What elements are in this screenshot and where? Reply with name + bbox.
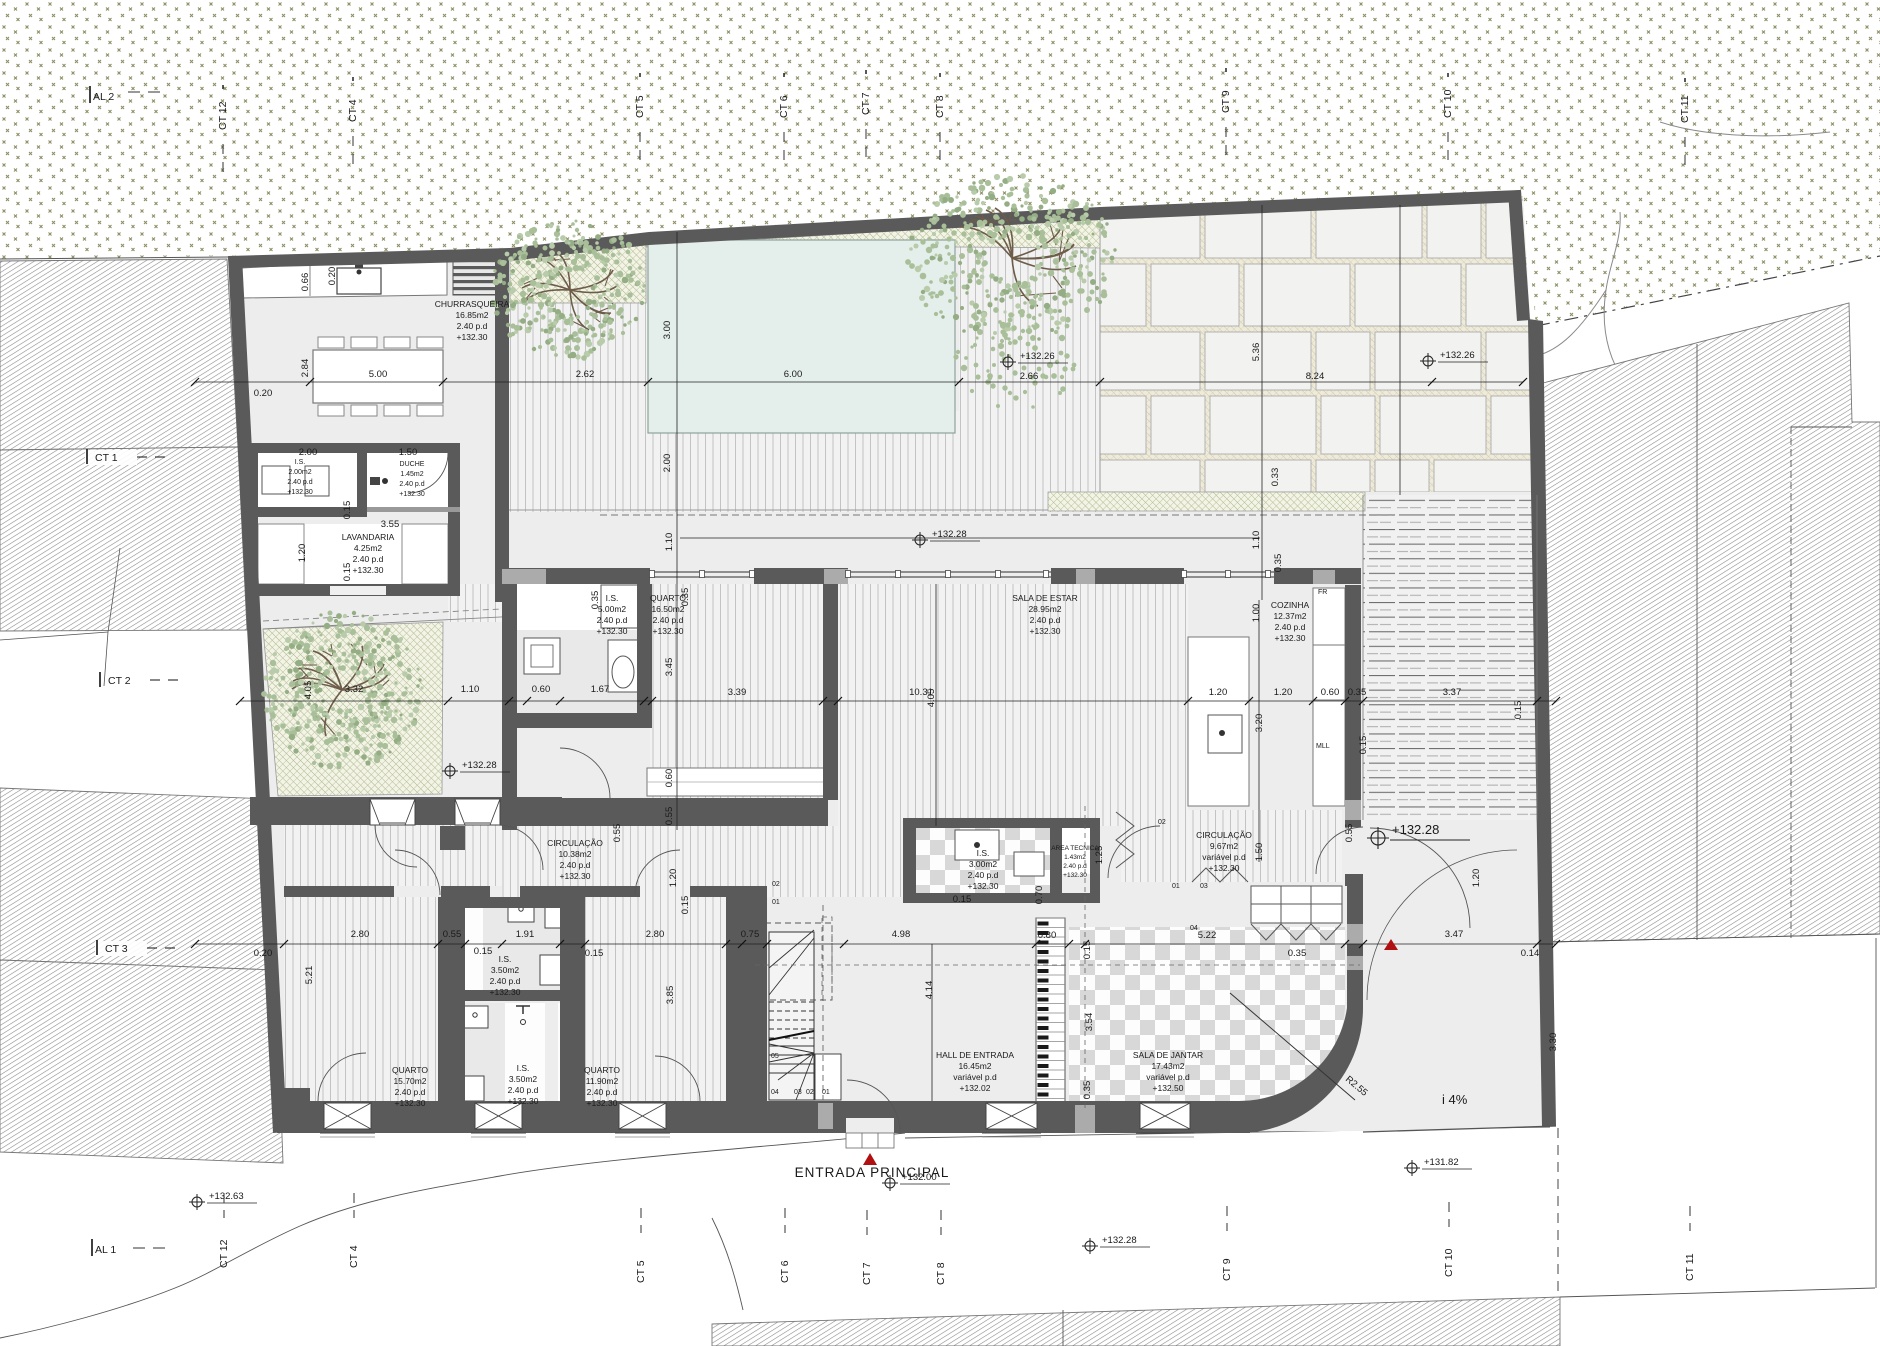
svg-text:0.60: 0.60 [1321,687,1340,698]
svg-text:0.20: 0.20 [327,267,338,286]
svg-text:1.67: 1.67 [591,684,610,695]
svg-text:2.40 p.d: 2.40 p.d [490,976,521,986]
svg-text:+132.26: +132.26 [1440,350,1475,361]
svg-text:4.05: 4.05 [926,689,937,708]
svg-text:3.39: 3.39 [728,687,747,698]
svg-text:0.75: 0.75 [741,929,760,940]
svg-text:CIRCULAÇÃO: CIRCULAÇÃO [1196,830,1252,840]
svg-text:2.00m2: 2.00m2 [288,469,311,476]
svg-text:0.35: 0.35 [1288,948,1307,959]
svg-text:0.20: 0.20 [254,388,273,399]
svg-text:0.15: 0.15 [1082,941,1093,960]
svg-text:01: 01 [1172,883,1180,890]
svg-text:02: 02 [806,1089,814,1096]
svg-text:2.40 p.d: 2.40 p.d [287,479,312,486]
svg-text:0.80: 0.80 [1038,930,1057,941]
svg-text:1.20: 1.20 [668,869,679,888]
svg-text:0.15: 0.15 [474,946,493,957]
svg-text:+132.30: +132.30 [353,565,384,575]
svg-text:CT 12: CT 12 [218,1239,230,1268]
svg-text:variável p.d: variável p.d [953,1072,997,1082]
svg-text:1.50: 1.50 [399,447,418,458]
svg-text:1.20: 1.20 [1471,869,1482,888]
svg-text:SALA DE ESTAR: SALA DE ESTAR [1012,593,1078,603]
svg-text:1.20: 1.20 [1274,687,1293,698]
svg-text:3.54: 3.54 [1084,1013,1095,1032]
svg-text:01: 01 [822,1089,830,1096]
svg-text:5.00m2: 5.00m2 [598,604,627,614]
svg-text:04: 04 [771,1089,779,1096]
svg-text:CT 5: CT 5 [635,1260,647,1283]
svg-text:0.15: 0.15 [342,501,353,520]
svg-text:4.05: 4.05 [303,681,314,700]
svg-text:3.85: 3.85 [665,986,676,1005]
svg-text:3.20: 3.20 [1254,714,1265,733]
svg-text:SALA DE JANTAR: SALA DE JANTAR [1133,1050,1203,1060]
svg-text:QUARTO: QUARTO [584,1065,620,1075]
svg-text:CT 5: CT 5 [634,95,646,118]
svg-text:CIRCULAÇÃO: CIRCULAÇÃO [547,838,603,848]
svg-text:CT 1: CT 1 [95,452,118,464]
svg-text:AL 1: AL 1 [95,1244,116,1256]
svg-text:QUARTO: QUARTO [392,1065,428,1075]
svg-text:+131.82: +131.82 [1424,1157,1459,1168]
svg-text:CT 7: CT 7 [861,1262,873,1285]
svg-text:0.15: 0.15 [680,896,691,915]
svg-text:+132.28: +132.28 [462,760,497,771]
svg-text:I.S.: I.S. [499,954,512,964]
svg-text:1.10: 1.10 [1251,531,1262,550]
svg-text:1.20: 1.20 [297,544,308,563]
svg-text:AREA TECNICA: AREA TECNICA [1051,845,1099,852]
svg-text:CHURRASQUEIRA: CHURRASQUEIRA [435,299,510,309]
svg-text:+132.30: +132.30 [1209,863,1240,873]
svg-text:1.43m2: 1.43m2 [1064,854,1086,861]
svg-text:0.15: 0.15 [953,894,972,905]
svg-text:0.33: 0.33 [1270,468,1281,487]
svg-text:3.45: 3.45 [664,658,675,677]
svg-text:2.40 p.d: 2.40 p.d [587,1087,618,1097]
svg-text:3.00: 3.00 [662,321,673,340]
svg-text:1.20: 1.20 [1209,687,1228,698]
svg-text:2.40 p.d: 2.40 p.d [457,321,488,331]
svg-text:+132.02: +132.02 [960,1083,991,1093]
svg-text:2.40 p.d: 2.40 p.d [653,615,684,625]
svg-text:+132.30: +132.30 [1030,626,1061,636]
svg-text:+132.30: +132.30 [597,626,628,636]
svg-text:COZINHA: COZINHA [1271,600,1310,610]
svg-text:5.21: 5.21 [304,966,315,985]
svg-text:28.95m2: 28.95m2 [1028,604,1061,614]
svg-text:I.S.: I.S. [977,848,990,858]
svg-text:2.40 p.d: 2.40 p.d [1275,622,1306,632]
svg-text:0.35: 0.35 [1082,1081,1093,1100]
svg-text:4.14: 4.14 [924,981,935,1000]
svg-text:1.45m2: 1.45m2 [400,471,423,478]
svg-text:0.70: 0.70 [1034,886,1045,905]
svg-text:04: 04 [1190,925,1198,932]
svg-text:HALL DE ENTRADA: HALL DE ENTRADA [936,1050,1014,1060]
svg-text:1.00: 1.00 [1251,604,1262,623]
svg-text:+132.26: +132.26 [1020,351,1055,362]
svg-text:2.80: 2.80 [646,929,665,940]
svg-text:0.15: 0.15 [1358,736,1369,755]
svg-text:+132.30: +132.30 [560,871,591,881]
svg-text:LAVANDARIA: LAVANDARIA [342,532,395,542]
svg-text:2.00: 2.00 [299,447,318,458]
svg-text:CT 9: CT 9 [1221,1258,1233,1281]
svg-text:10.38m2: 10.38m2 [558,849,591,859]
svg-text:12.37m2: 12.37m2 [1273,611,1306,621]
svg-text:+132.30: +132.30 [490,987,521,997]
svg-text:CT 3: CT 3 [105,943,128,955]
svg-text:I.S.: I.S. [606,593,619,603]
svg-text:CT 4: CT 4 [348,1245,360,1268]
svg-text:0.15: 0.15 [342,563,353,582]
svg-text:3.37: 3.37 [1443,687,1462,698]
svg-text:I.S.: I.S. [517,1063,530,1073]
svg-text:variável p.d: variável p.d [1146,1072,1190,1082]
svg-text:0.55: 0.55 [1344,824,1355,843]
svg-text:2.80: 2.80 [351,929,370,940]
svg-text:0.55: 0.55 [443,929,462,940]
svg-text:3.00m2: 3.00m2 [969,859,998,869]
svg-text:1.10: 1.10 [461,684,480,695]
svg-text:MLL: MLL [1316,743,1330,750]
svg-text:2.66: 2.66 [1020,371,1039,382]
svg-text:AL 2: AL 2 [93,91,114,103]
svg-text:9.67m2: 9.67m2 [1210,841,1239,851]
svg-text:+132.28: +132.28 [1102,1235,1137,1246]
svg-text:0.20: 0.20 [254,948,273,959]
svg-text:2.40 p.d: 2.40 p.d [1030,615,1061,625]
svg-text:CT 9: CT 9 [1220,90,1232,113]
svg-text:CT 8: CT 8 [935,1262,947,1285]
svg-text:17.43m2: 17.43m2 [1151,1061,1184,1071]
svg-text:3.55: 3.55 [381,519,400,530]
svg-text:CT 8: CT 8 [934,95,946,118]
svg-text:1.10: 1.10 [664,533,675,552]
svg-text:QUARTO: QUARTO [650,593,686,603]
svg-text:+132.30: +132.30 [1063,872,1087,879]
svg-text:16.85m2: 16.85m2 [455,310,488,320]
svg-text:3.30: 3.30 [1548,1033,1559,1052]
svg-text:+132.30: +132.30 [968,881,999,891]
svg-text:1.91: 1.91 [516,929,535,940]
svg-text:0.55: 0.55 [664,807,675,826]
svg-text:0.60: 0.60 [664,769,675,788]
svg-text:11.90m2: 11.90m2 [586,1076,619,1086]
svg-text:2.40 p.d: 2.40 p.d [508,1085,539,1095]
svg-text:0.15: 0.15 [1513,701,1524,720]
svg-text:5.36: 5.36 [1251,343,1262,362]
svg-text:0.55: 0.55 [612,824,623,843]
svg-text:FR: FR [1318,589,1327,596]
svg-text:3.50m2: 3.50m2 [509,1074,538,1084]
svg-text:+132.00: +132.00 [902,1172,937,1183]
svg-text:8.24: 8.24 [1306,371,1325,382]
svg-text:+132.30: +132.30 [1275,633,1306,643]
svg-text:+132.30: +132.30 [287,489,313,496]
svg-text:3.47: 3.47 [1445,929,1464,940]
svg-text:15.70m2: 15.70m2 [393,1076,426,1086]
svg-text:2.40 p.d: 2.40 p.d [1063,863,1087,870]
svg-text:+132.63: +132.63 [209,1191,244,1202]
svg-text:2.40 p.d: 2.40 p.d [399,481,424,488]
svg-text:0.60: 0.60 [532,684,551,695]
svg-text:2.40 p.d: 2.40 p.d [353,554,384,564]
svg-text:+132.30: +132.30 [395,1098,426,1108]
svg-text:DUCHE: DUCHE [400,461,425,468]
svg-text:2.00: 2.00 [662,454,673,473]
svg-text:CT 11: CT 11 [1684,1253,1696,1281]
svg-text:CT 6: CT 6 [778,95,790,118]
svg-text:i 4%: i 4% [1442,1092,1468,1107]
svg-text:CT 12: CT 12 [217,101,229,130]
svg-text:+132.50: +132.50 [1153,1083,1184,1093]
svg-text:4.98: 4.98 [892,929,911,940]
svg-text:variável p.d: variável p.d [1202,852,1246,862]
svg-text:2.84: 2.84 [300,359,311,378]
svg-text:2.62: 2.62 [576,369,595,380]
svg-text:0.66: 0.66 [300,273,311,292]
svg-text:CT 10: CT 10 [1443,1248,1455,1277]
svg-text:2.40 p.d: 2.40 p.d [597,615,628,625]
svg-text:5.00: 5.00 [369,369,388,380]
svg-text:CT 6: CT 6 [779,1260,791,1283]
svg-text:CT 4: CT 4 [347,99,359,122]
svg-text:CT 2: CT 2 [108,675,131,687]
svg-text:2.40 p.d: 2.40 p.d [560,860,591,870]
svg-text:0.35: 0.35 [1273,554,1284,573]
svg-text:02: 02 [1158,819,1166,826]
svg-text:05: 05 [771,1053,779,1060]
svg-text:3.50m2: 3.50m2 [491,965,520,975]
svg-text:16.50m2: 16.50m2 [651,604,684,614]
svg-text:+132.30: +132.30 [508,1096,539,1106]
svg-text:+132.30: +132.30 [457,332,488,342]
svg-text:5.22: 5.22 [1198,930,1217,941]
svg-text:2.40 p.d: 2.40 p.d [968,870,999,880]
svg-text:01: 01 [772,899,780,906]
svg-text:+132.28: +132.28 [1392,822,1439,837]
svg-text:+132.30: +132.30 [587,1098,618,1108]
svg-text:0.15: 0.15 [585,948,604,959]
svg-text:16.45m2: 16.45m2 [958,1061,991,1071]
svg-text:CT 10: CT 10 [1442,89,1454,118]
svg-text:0.14: 0.14 [1521,948,1540,959]
svg-text:2.40 p.d: 2.40 p.d [395,1087,426,1097]
svg-text:+132.28: +132.28 [932,529,967,540]
svg-text:+132.30: +132.30 [653,626,684,636]
svg-text:6.00: 6.00 [784,369,803,380]
svg-text:1.50: 1.50 [1254,843,1265,862]
svg-text:+132.30: +132.30 [399,491,425,498]
svg-text:03: 03 [794,1089,802,1096]
svg-text:02: 02 [772,881,780,888]
svg-text:03: 03 [1200,883,1208,890]
svg-text:4.25m2: 4.25m2 [354,543,383,553]
svg-text:I.S.: I.S. [295,459,306,466]
svg-text:CT 11: CT 11 [1679,95,1691,123]
svg-text:3.32: 3.32 [345,684,364,695]
svg-text:0.35: 0.35 [1348,687,1367,698]
svg-text:CT 7: CT 7 [860,92,872,115]
